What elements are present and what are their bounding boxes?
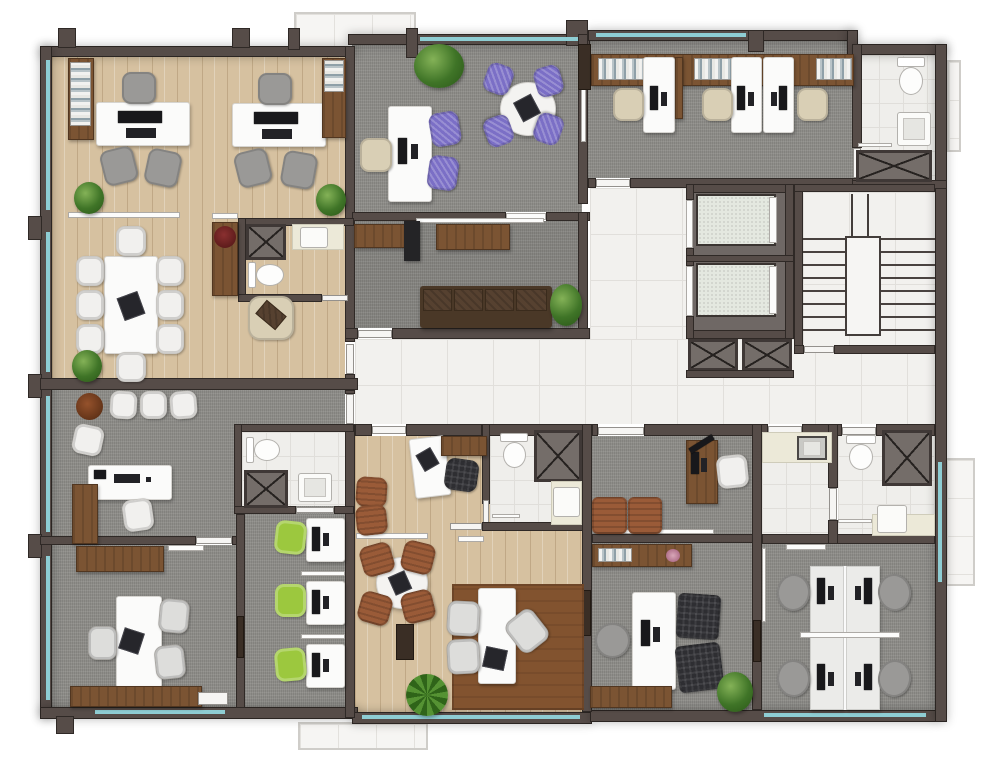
whiteboard-reception [416,218,544,223]
door-studio-wc-leaf [450,523,482,530]
exec-chair-1 [122,72,156,104]
door-conf-wc [322,295,348,301]
stair-flight-right [881,238,935,338]
window-south-2 [362,715,580,719]
wall-elev-top [686,184,794,193]
task-chair-beige [797,88,828,121]
stair-landing [845,236,881,336]
whiteboard-meeting-west [168,545,204,551]
door-wc-south-east [842,427,876,435]
binder-row [598,548,632,562]
room-elevator-lobby [590,188,688,339]
wall-h4a [588,178,596,188]
black-armchair [675,593,721,641]
exec-chair-2 [258,73,292,105]
task-chair-beige [613,88,644,121]
column-stub [288,28,300,50]
toilet-bowl [503,442,526,468]
door-open-office [596,179,630,187]
service-shaft-conf-wc [246,224,286,260]
wall-v3 [578,212,588,339]
keyboard [323,596,329,609]
sink-basin [803,441,821,456]
balcony-east [945,458,975,586]
keyboard [114,474,140,483]
monitor [817,664,825,690]
wall-north-d [852,44,947,55]
window-west-4 [46,556,50,700]
wall-v5 [236,514,245,708]
wall-stair-top [794,184,935,192]
wall-stair-bottom-b [834,345,935,354]
monitor [864,578,872,604]
elevator-door-2 [686,266,693,316]
window-west-2 [46,232,50,372]
wall-wc-west-top [234,424,354,432]
sideboard-meeting-west [70,686,202,707]
door-left-suite [346,344,354,374]
keyboard [661,92,667,106]
planter-pot [76,393,103,420]
exec-desk-1-keyboard [126,128,156,138]
elevator-cab-1-door [769,197,777,243]
column-stub [406,28,418,58]
wall-h5-5 [644,424,768,436]
purple-chair [427,110,462,149]
bench-center-line [844,566,846,710]
dark-cabinet [396,624,414,660]
keyboard [771,92,777,106]
conference-chair [116,352,146,382]
sienna-armchair [628,497,662,534]
sofa-cushion [485,289,514,311]
wall-elev-mid [686,255,794,262]
exec-desk-2 [232,103,326,147]
white-chair [169,390,198,420]
wall-wc-west-left [234,424,242,514]
glass-partition-exec-b [212,213,238,219]
reception-cabinet [354,224,406,248]
green-chair [275,584,306,617]
wc-sink [553,487,580,517]
conference-chair [76,256,104,286]
monitor [650,86,658,110]
workstation-desk [643,57,675,133]
monitor [312,653,320,677]
sink-basin [903,118,925,140]
grab-bar [838,519,872,523]
wall-h5-1 [355,424,372,436]
elevator-door-1 [686,200,693,248]
monitor [817,578,825,604]
stair-railing-1 [851,194,853,238]
plant [74,182,104,214]
window-west-3 [46,396,50,532]
monitor [641,620,650,646]
door-studio-suite [372,426,406,434]
conference-chair [116,226,146,256]
door-studio-wc [483,500,489,524]
window-east-1 [938,462,942,582]
floor-plan [0,0,1000,767]
gray-task-chair [595,623,630,658]
toilet-bowl [254,439,280,461]
workstation-desk [731,57,762,133]
credenza-meeting-west [76,546,164,572]
grab-bar [492,514,520,518]
conference-chair [156,290,184,320]
sienna-chair [355,476,388,508]
column-stub [58,28,76,48]
purple-chair [426,154,460,192]
monitor [779,86,787,110]
keyboard [855,586,861,600]
door-workstation-row [237,616,244,658]
stair-flight-left [803,238,845,338]
green-chair [274,647,308,683]
door-office-west [346,394,354,424]
wall-north-a [40,46,355,57]
toilet-bowl [256,264,284,286]
sofa-cushion [516,289,547,311]
desk-return [675,57,683,119]
keyboard [323,659,329,672]
towel-bar [858,143,892,147]
monitor [312,527,320,551]
service-shaft-west [244,470,288,508]
purple-room-desk [388,106,432,202]
sienna-chair [355,503,389,536]
door-leaf-meeting-west [198,692,228,705]
reception-locker [404,221,420,261]
reception-counter [436,224,510,250]
door-wc-se-inner [829,488,837,520]
service-shaft-ne [856,150,932,182]
silver-chair [158,598,191,634]
studio-cabinet [441,436,487,456]
window-west-1 [46,60,50,210]
column-stub [748,30,764,52]
monitor [737,86,745,110]
keyboard [828,672,834,686]
wall-stair-left [794,184,803,354]
silver-chair [88,626,117,660]
desk-divider [301,571,345,576]
monitor [312,590,320,614]
purple-room-keyboard [411,144,418,159]
door-studio-east [583,590,591,636]
wall-h6 [40,536,196,545]
toilet-bowl [899,67,923,95]
exec-desk-2-keyboard [262,129,292,139]
white-chair [140,391,167,419]
wall-stair-bottom-a [794,345,804,354]
exec-desk-1 [96,102,190,146]
wall-h3b [392,328,590,339]
elevator-cab-1 [696,194,776,246]
wall-elev-left-3 [686,316,694,339]
elevator-cab-2 [696,263,776,317]
guest-chair [279,149,319,190]
purple-room-monitor [398,138,407,164]
whiteboard-team-east [786,544,826,550]
window-north-2 [596,33,746,37]
conference-chair [156,256,184,286]
bench-divider [800,632,900,638]
wall-elev-left-1 [686,184,694,200]
red-plant [214,226,236,248]
wall-h3a [345,328,358,339]
desk-phone [94,470,106,479]
task-chair-beige [360,138,392,172]
plant [717,672,753,712]
keyboard [855,672,861,686]
plant [316,184,346,216]
door-stairwell [804,346,834,353]
silver-chair [446,600,481,637]
bench-desk-left [810,566,844,710]
glass-team-east-west-wall [762,548,766,622]
wc-sink [300,227,328,248]
task-chair-beige [702,88,733,121]
exec-desk-2-monitor [254,112,298,124]
conference-chair [156,324,184,354]
toilet-tank [500,433,528,442]
toilet-bowl [849,444,873,470]
sienna-armchair [592,497,627,534]
flower [666,549,680,562]
door-reception [358,330,392,338]
bench-desk-right [846,566,880,710]
column-stub [232,28,250,48]
sink-basin [304,478,326,497]
wall-h5-2 [406,424,482,436]
black-chair [443,457,480,493]
keyboard [828,586,834,600]
service-shaft-2 [742,339,792,371]
whiteboard-open-office [581,88,586,142]
door-meeting-west [196,537,232,544]
balcony-south [298,722,428,750]
sofa-cushion [454,289,483,311]
wall-h7 [592,534,754,543]
wall-wc-west-bottom-b [334,506,354,514]
stair-railing-2 [867,194,869,238]
binders-west [70,62,91,126]
white-chair [121,497,155,533]
door-wc-west [296,507,334,513]
wc-sink [877,505,907,533]
window-south-1 [95,710,225,714]
mouse [146,477,151,482]
service-shaft-1 [688,339,738,371]
sofa-cushion [423,289,452,311]
wall-v1c [345,424,355,718]
keyboard [653,627,660,642]
white-chair [109,390,137,419]
toilet-tank [897,57,925,67]
column-stub [56,716,74,734]
silver-chair [153,644,186,681]
white-chair [715,453,749,489]
keyboard [701,458,707,472]
green-chair [273,519,307,555]
cabinet-west [72,484,98,544]
wall-conf-wc-left [238,218,246,302]
wall-shaft-bottom [686,370,794,378]
service-shaft-studio [534,430,582,482]
plant [72,350,102,382]
silver-chair [446,638,481,675]
exec-desk-1-monitor [118,111,162,123]
ledge-east [947,60,961,152]
window-north-1 [420,37,578,41]
wall-east [935,44,947,722]
elevator-cab-2-door [769,266,777,314]
wall-v9b [828,520,838,544]
toilet-tank [846,435,876,444]
conference-chair [76,290,104,320]
laptop [482,646,508,671]
binder-row [816,58,852,80]
keyboard [323,533,329,546]
service-shaft-se [882,430,932,486]
plant [550,284,582,326]
desk-divider [301,634,345,639]
window-south-3 [764,713,926,717]
column-stub [28,216,42,240]
palm-plant [406,674,448,716]
shrub [414,44,464,88]
monitor [691,452,699,474]
credenza-director [590,686,672,708]
waiting-sofa [420,286,552,328]
door-team-east [753,620,761,662]
partition-studio-b [458,536,484,542]
toilet-tank [248,262,256,288]
keyboard [748,92,754,106]
wall-v7 [752,424,762,710]
monitor [864,664,872,690]
binders-east [324,60,344,92]
toilet-tank [246,437,254,463]
tall-cabinet [578,44,591,90]
door-manager-office [598,427,644,435]
wall-elev-bottom [686,330,794,339]
